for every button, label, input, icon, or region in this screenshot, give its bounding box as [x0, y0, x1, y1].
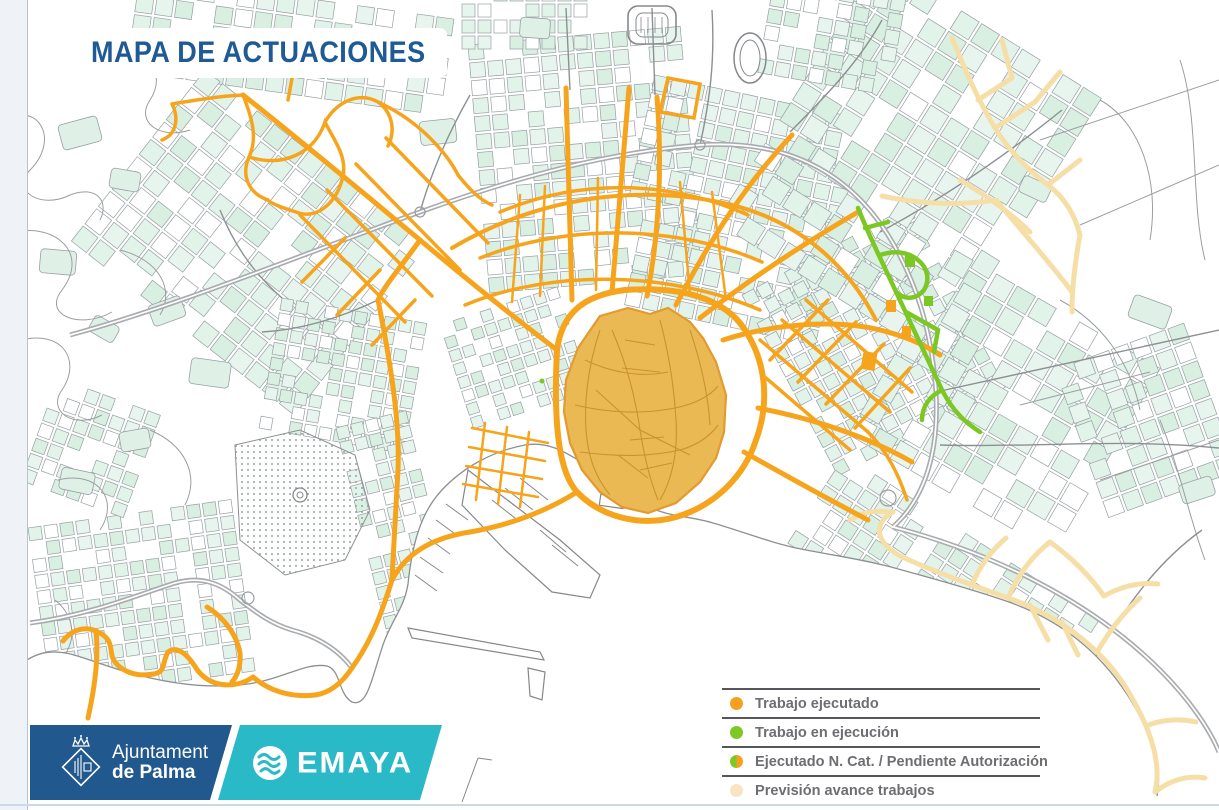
stadium-structures	[628, 6, 766, 83]
legend-label: Trabajo ejecutado	[755, 695, 879, 712]
emaya-wordmark: EMAYA	[297, 745, 413, 779]
palma-coat-of-arms-icon	[58, 734, 104, 792]
legend-label: Trabajo en ejecución	[755, 724, 899, 741]
legend-item-planned: Previsión avance trabajos	[722, 775, 1040, 806]
legend-label: Previsión avance trabajos	[755, 782, 935, 799]
bottom-border-line	[0, 804, 1219, 806]
map-title-band: MAPA DE ACTUACIONES	[75, 28, 447, 78]
legend-item-pending-authorization: Ejecutado N. Cat. / Pendiente Autorizaci…	[722, 746, 1040, 775]
map-legend: Trabajo ejecutado Trabajo en ejecución E…	[722, 688, 1040, 806]
de-palma-text: de Palma	[112, 763, 208, 783]
ajuntament-text: Ajuntament	[112, 743, 208, 763]
emaya-waves-icon	[251, 744, 289, 782]
legend-item-executed: Trabajo ejecutado	[722, 688, 1040, 717]
emaya-logo: EMAYA	[218, 725, 446, 800]
executed-orange-dot-icon	[730, 697, 743, 710]
ajuntament-de-palma-logo: Ajuntament de Palma	[30, 725, 232, 800]
in-progress-green-dot-icon	[730, 726, 743, 739]
legend-item-in-progress: Trabajo en ejecución	[722, 717, 1040, 746]
planned-cream-dot-icon	[730, 784, 743, 797]
map-of-actions-page: MAPA DE ACTUACIONES Trabajo ejecutado Tr…	[0, 0, 1219, 810]
page-title: MAPA DE ACTUACIONES	[91, 36, 426, 70]
page-margin	[0, 0, 28, 810]
legend-label: Ejecutado N. Cat. / Pendiente Autorizaci…	[755, 753, 1048, 770]
split-green-orange-dot-icon	[730, 755, 743, 768]
